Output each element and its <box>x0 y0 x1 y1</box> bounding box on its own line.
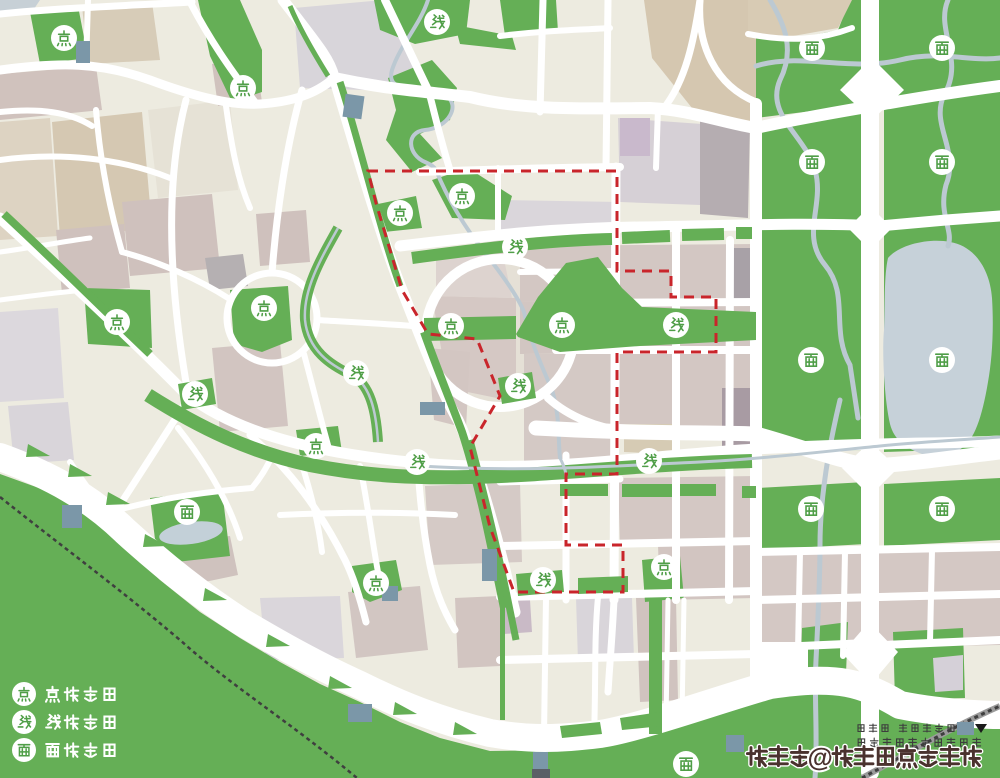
svg-text:@: @ <box>808 742 833 772</box>
